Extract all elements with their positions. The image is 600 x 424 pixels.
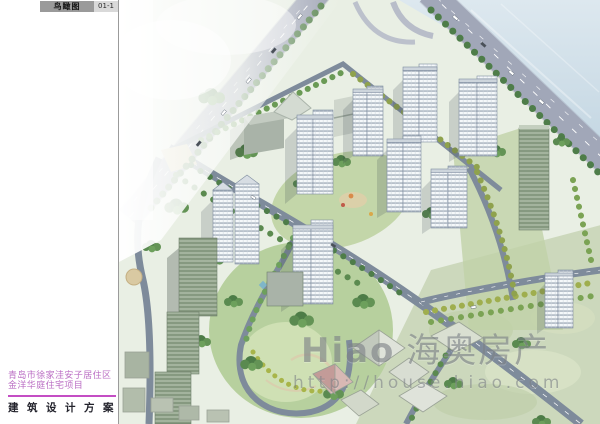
rendering-graphic (119, 0, 600, 424)
project-title-line2: 金洋华庭住宅项目 (8, 381, 116, 391)
sheet-label: 鸟瞰图 (40, 1, 94, 12)
drawing-sheet: 鸟瞰图 01-1 (0, 0, 600, 424)
sheet-label-bar: 鸟瞰图 01-1 (40, 1, 118, 12)
title-divider (8, 395, 116, 397)
aerial-rendering: Hiao 海奥房产 http://house.hiao.com (118, 0, 600, 424)
project-title-line1: 青岛市徐家洼安子居住区 (8, 371, 116, 381)
document-type-label: 建筑设计方案 (8, 400, 116, 415)
title-block: 青岛市徐家洼安子居住区 金洋华庭住宅项目 建筑设计方案 (8, 371, 116, 415)
sheet-number: 01-1 (94, 1, 118, 12)
